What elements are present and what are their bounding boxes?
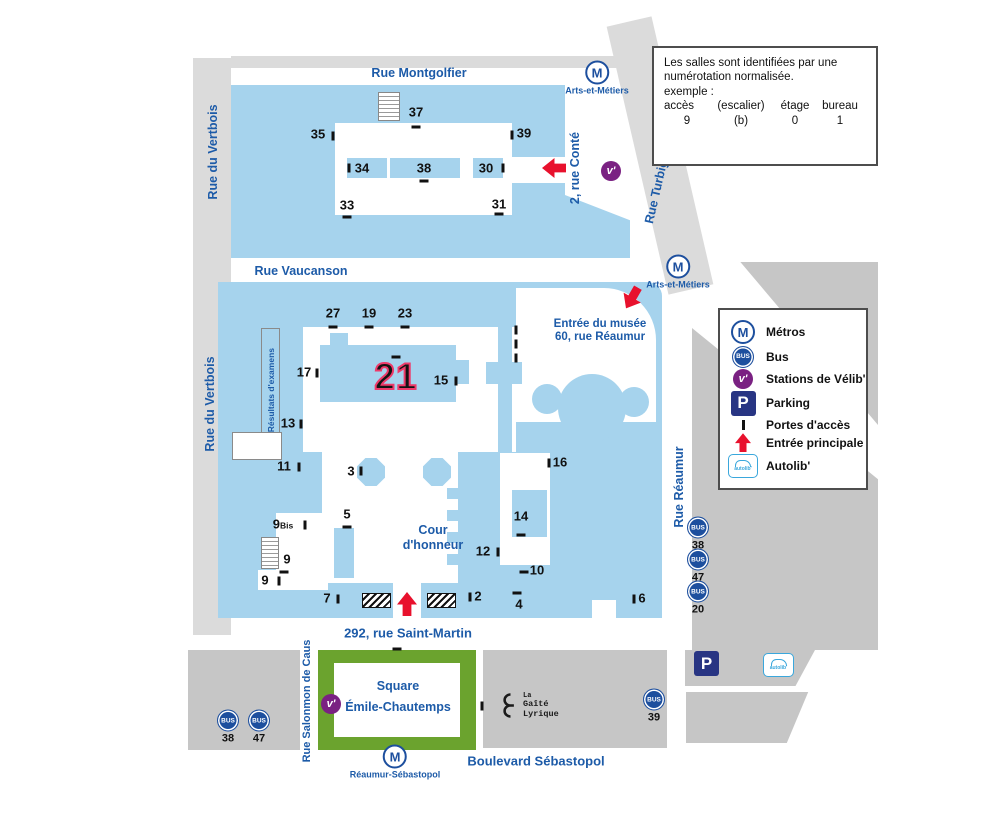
metro-icon: M <box>585 61 609 85</box>
legend-row-entree: Entrée principale <box>728 433 858 452</box>
map: Résultats d'examens Square Émile-Chautem… <box>0 0 1001 817</box>
door-tick <box>633 595 636 604</box>
door-tick <box>481 702 484 711</box>
door-tick <box>469 593 472 602</box>
hatched-area <box>427 593 456 608</box>
gaite-logo <box>502 692 519 719</box>
access-number: 37 <box>409 105 423 120</box>
access-number: 34 <box>355 161 369 176</box>
access-number: 23 <box>398 306 412 321</box>
autolib-icon: autolib' <box>763 653 794 677</box>
street-conte-label: 2, rue Conté <box>568 132 582 204</box>
access-number: 16 <box>553 455 567 470</box>
square-label-2: Émile-Chautemps <box>345 700 451 714</box>
door-tick <box>392 356 401 359</box>
velib-icon: v' <box>733 369 753 389</box>
door-tick <box>520 571 529 574</box>
bus-line-number: 38 <box>222 733 234 745</box>
street-vertbois-label-top: Rue du Vertbois <box>206 104 220 199</box>
door-tick <box>455 377 458 386</box>
metro-icon: M <box>666 255 690 279</box>
access-number: 35 <box>311 127 325 142</box>
legend-row-parking: P Parking <box>728 391 858 416</box>
legend-row-autolib: autolib' Autolib' <box>728 454 858 478</box>
street-montgolfier-label: Rue Montgolfier <box>371 66 466 80</box>
bus-stop: BUS39 <box>643 689 665 724</box>
cour-label-2: d'honneur <box>403 538 464 552</box>
street-vaucanson-label: Rue Vaucanson <box>254 264 347 278</box>
door-tick <box>343 216 352 219</box>
door-tick <box>360 467 363 476</box>
door-tick <box>304 521 307 530</box>
access-number: 3 <box>347 464 354 479</box>
cour-label-1: Cour <box>418 523 447 537</box>
door-tick <box>332 132 335 141</box>
access-number: 7 <box>323 591 330 606</box>
bus-line-number: 47 <box>253 733 265 745</box>
staircase-icon <box>261 537 279 569</box>
access-number: 19 <box>362 306 376 321</box>
hatched-area <box>362 593 391 608</box>
bus-icon: BUS <box>248 710 270 732</box>
door-tick <box>337 595 340 604</box>
door-tick <box>393 648 402 651</box>
metro-station: MArts-et-Métiers <box>565 61 629 96</box>
street-sebastopol-label: Boulevard Sébastopol <box>467 754 604 769</box>
bus-stop: BUS20 <box>687 581 709 616</box>
legend-row-velib: v' Stations de Vélib' <box>728 369 858 389</box>
door-tick <box>280 571 289 574</box>
bus-icon: BUS <box>687 581 709 603</box>
street-reaumur-label: Rue Réaumur <box>672 446 686 527</box>
door-tick-icon <box>742 420 745 430</box>
door-tick <box>515 340 518 349</box>
door-tick <box>502 164 505 173</box>
metro-station: MArts-et-Métiers <box>646 255 710 290</box>
velib-icon: v' <box>601 161 621 181</box>
street-salomon-label: Rue Salonmon de Caus <box>301 640 313 763</box>
building-21-number: 21 <box>374 356 417 398</box>
access-number: 9Bis <box>273 517 293 532</box>
door-tick <box>497 548 500 557</box>
access-number: 12 <box>476 544 490 559</box>
door-tick <box>515 326 518 335</box>
door-tick <box>517 534 526 537</box>
door-tick <box>401 326 410 329</box>
velib-icon: v' <box>321 694 341 714</box>
door-tick <box>495 213 504 216</box>
door-tick <box>298 463 301 472</box>
access-number: 2 <box>474 589 481 604</box>
access-number: 27 <box>326 306 340 321</box>
info-box: Les salles sont identifiées par une numé… <box>652 46 878 166</box>
access-number: 39 <box>517 126 531 141</box>
metro-station: MRéaumur-Sébastopol <box>350 745 441 780</box>
access-number: 30 <box>479 161 493 176</box>
access-number: 13 <box>281 416 295 431</box>
metro-station-name: Arts-et-Métiers <box>565 86 629 96</box>
metro-icon: M <box>383 745 407 769</box>
door-tick <box>348 164 351 173</box>
access-number: 17 <box>297 365 311 380</box>
door-tick <box>511 131 514 140</box>
access-number: 15 <box>434 373 448 388</box>
access-number: 10 <box>530 563 544 578</box>
legend: M Métros BUS Bus v' Stations de Vélib' P… <box>718 308 868 490</box>
access-number: 31 <box>492 197 506 212</box>
gaite-lyrique: La Gaîté Lyrique <box>502 692 559 720</box>
access-number: 4 <box>515 597 522 612</box>
access-number: 38 <box>417 161 431 176</box>
access-number: 9 <box>283 552 290 567</box>
staircase-icon <box>378 92 400 121</box>
legend-row-portes: Portes d'accès <box>728 418 858 432</box>
door-tick <box>515 354 518 363</box>
bus-line-number: 39 <box>648 712 660 724</box>
info-line-3: exemple : <box>664 85 866 99</box>
door-tick <box>420 180 429 183</box>
bus-stop: BUS47 <box>248 710 270 745</box>
street-saint-martin-label: 292, rue Saint-Martin <box>344 626 472 641</box>
door-tick <box>278 577 281 586</box>
door-tick <box>316 369 319 378</box>
bus-stop: BUS38 <box>687 517 709 552</box>
info-columns: accès(escalier)étagebureau <box>664 99 866 113</box>
square-label-1: Square <box>377 679 419 693</box>
entrance-arrow-icon <box>735 433 751 452</box>
parking-icon: P <box>694 651 719 676</box>
access-number: 5 <box>343 507 350 522</box>
info-line-1: Les salles sont identifiées par une <box>664 56 866 70</box>
door-tick <box>365 326 374 329</box>
access-number: 6 <box>638 591 645 606</box>
bus-icon: BUS <box>687 549 709 571</box>
bus-icon: BUS <box>643 689 665 711</box>
bus-icon: BUS <box>687 517 709 539</box>
door-tick <box>300 420 303 429</box>
bus-line-number: 20 <box>692 604 704 616</box>
door-tick <box>513 592 522 595</box>
door-tick <box>548 459 551 468</box>
info-line-2: numérotation normalisée. <box>664 70 866 84</box>
legend-row-metro: M Métros <box>728 320 858 344</box>
musee-label-2: 60, rue Réaumur <box>555 331 645 343</box>
autolib-icon: autolib' <box>728 454 758 478</box>
parking-icon: P <box>731 391 756 416</box>
metro-station-name: Arts-et-Métiers <box>646 280 710 290</box>
gaite-label-3: Lyrique <box>523 710 559 720</box>
bus-icon: BUS <box>217 710 239 732</box>
street-vertbois-label-mid: Rue du Vertbois <box>203 356 217 451</box>
access-number: 14 <box>514 509 528 524</box>
access-number: 33 <box>340 198 354 213</box>
bus-stop: BUS38 <box>217 710 239 745</box>
access-number: 11 <box>277 459 291 474</box>
metro-station-name: Réaumur-Sébastopol <box>350 770 441 780</box>
door-tick <box>343 526 352 529</box>
bus-icon: BUS <box>732 346 754 368</box>
access-number: 9 <box>261 573 268 588</box>
musee-label-1: Entrée du musée <box>554 318 647 330</box>
bus-stop: BUS47 <box>687 549 709 584</box>
info-values: 9(b)01 <box>664 114 866 128</box>
legend-row-bus: BUS Bus <box>728 346 858 368</box>
metro-icon: M <box>731 320 755 344</box>
door-tick <box>412 126 421 129</box>
door-tick <box>329 326 338 329</box>
